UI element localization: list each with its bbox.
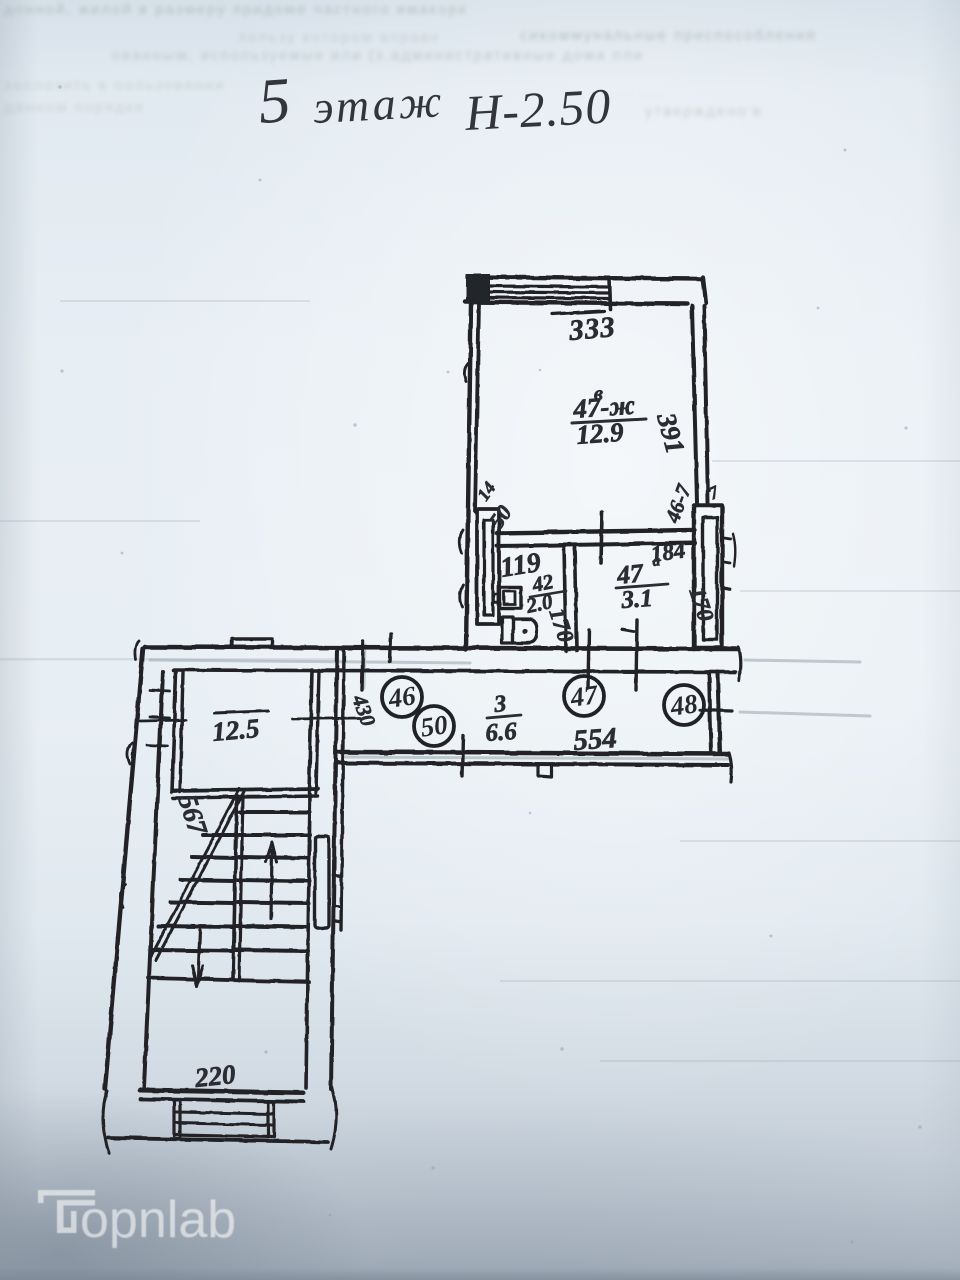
svg-text:данном порядке: данном порядке	[4, 99, 145, 116]
svg-text:554: 554	[572, 722, 618, 757]
svg-text:донной, жилой в размеру придом: донной, жилой в размеру придоме частного…	[4, 1, 468, 18]
svg-text:Н-2.50: Н-2.50	[463, 77, 613, 141]
svg-text:opnlab: opnlab	[80, 1191, 236, 1249]
svg-text:220: 220	[192, 1059, 237, 1093]
svg-text:утверждено'в: утверждено'в	[645, 103, 762, 120]
svg-text:47: 47	[568, 679, 601, 713]
svg-text:50: 50	[419, 709, 450, 743]
svg-text:12.5: 12.5	[211, 713, 261, 747]
svg-text:170: 170	[544, 605, 579, 646]
svg-text:48: 48	[668, 688, 700, 722]
svg-text:пользу котором вправе: пользу котором вправе	[238, 29, 441, 46]
svg-text:333: 333	[567, 311, 617, 347]
svg-text:сикоммунальные приспособления: сикоммунальные приспособления	[520, 27, 817, 44]
svg-text:46: 46	[386, 680, 418, 714]
svg-text:3: 3	[492, 691, 508, 718]
svg-text:ованным, используемые или (з.а: ованным, используемые или (з.администрат…	[112, 47, 644, 64]
svg-text:5: 5	[256, 64, 293, 137]
svg-text:заплозить в пользовании: заплозить в пользовании	[4, 77, 226, 94]
svg-text:46-7: 46-7	[660, 480, 697, 527]
svg-text:50: 50	[484, 501, 517, 533]
svg-text:этаж: этаж	[312, 75, 446, 133]
svg-text:12.9: 12.9	[575, 417, 625, 450]
svg-text:170: 170	[684, 584, 719, 625]
svg-text:430: 430	[347, 691, 381, 730]
svg-text:6.6: 6.6	[485, 718, 519, 747]
svg-text:391: 391	[651, 409, 691, 457]
svg-text:3.1: 3.1	[620, 585, 654, 614]
